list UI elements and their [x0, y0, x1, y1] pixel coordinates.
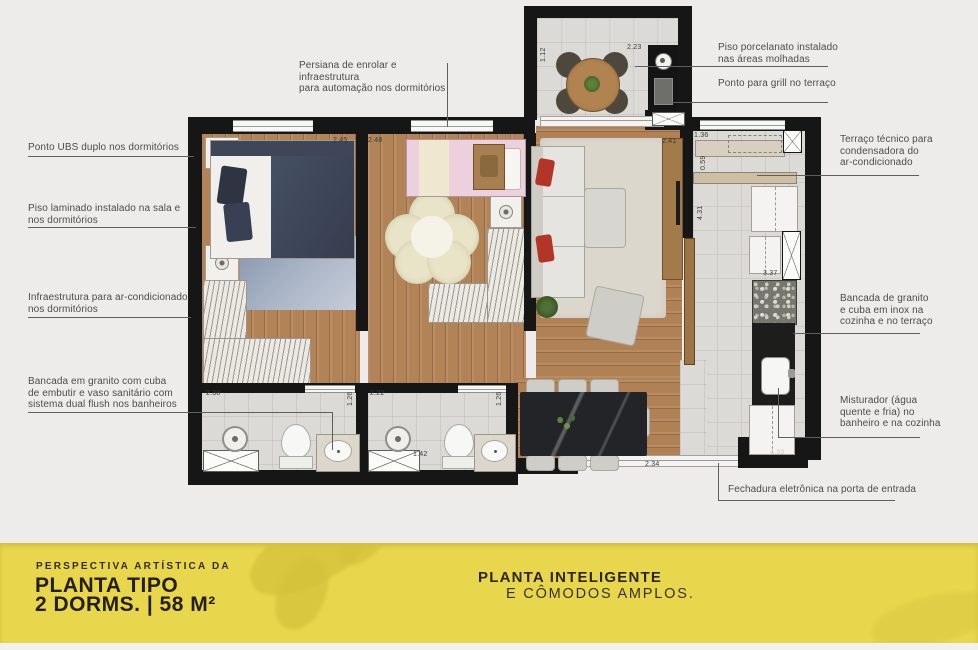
floor-plan: Persiana de enrolar e infraestrutura par… [0, 0, 978, 543]
leader-line [28, 156, 194, 157]
callout-ponto-ubs: Ponto UBS duplo nos dormitórios [28, 142, 198, 154]
kitchen-black-counter [752, 323, 795, 405]
callout-piso-laminado: Piso laminado instalado na sala e nos do… [28, 203, 198, 226]
bedroom1-window [233, 120, 313, 132]
dimension-label: 1.26 [496, 392, 503, 406]
leader-line [332, 412, 333, 450]
footer-eyebrow: PERSPECTIVA ARTÍSTICA DA [36, 561, 231, 572]
leader-line [28, 227, 196, 228]
dimension-label: 4.39 [770, 449, 784, 456]
kitchen-faucet [788, 369, 795, 378]
kitchen-stove-granite [752, 280, 797, 325]
sofa-red-pillow [535, 234, 555, 263]
dimension-label: 1.36 [694, 132, 708, 139]
leaf-shadow [867, 584, 978, 643]
dimension-label: 2.38 [206, 390, 220, 397]
terrace-table-plant [584, 76, 600, 92]
bathroom2-toilet [444, 424, 474, 459]
bedroom2-single-bed [406, 139, 526, 197]
dining-table [520, 392, 647, 456]
wall-terrace-left [524, 6, 537, 120]
bathroom1-sink [324, 440, 352, 462]
bedroom2-desk-chair [473, 144, 505, 190]
leader-line [778, 437, 920, 438]
kitchen-counter [749, 236, 781, 274]
bedroom1-wardrobe-horizontal [203, 338, 311, 384]
dining-chair [558, 455, 587, 471]
callout-bancada-cozinha: Bancada de granito e cuba em inox na coz… [840, 293, 950, 328]
condenser-dashed-outline [728, 135, 782, 153]
terrace-pass-through [652, 112, 685, 126]
shaft-top [783, 130, 802, 153]
wall-right [805, 128, 821, 460]
ottoman [584, 188, 626, 248]
hall-floor [680, 360, 707, 460]
leader-line [28, 412, 333, 413]
kitchen-cabinet [749, 405, 795, 455]
callout-infra-ar: Infraestrutura para ar-condicionado nos … [28, 292, 203, 315]
techterrace-kitchen-counter [693, 172, 797, 184]
footer-tagline-line2: E CÔMODOS AMPLOS. [506, 586, 695, 602]
tv-panel [662, 138, 683, 280]
armchair [585, 285, 645, 346]
dining-table-plant [550, 412, 584, 432]
floorplan-marketing-page: { "plan": { "callouts": { "top": "Persia… [0, 0, 978, 650]
dining-chair [526, 455, 555, 471]
callout-ponto-grill: Ponto para grill no terraço [718, 78, 858, 90]
dimension-label: 4.31 [697, 206, 704, 220]
dining-chair [590, 455, 619, 471]
leader-line [718, 500, 895, 501]
leader-line [635, 66, 828, 67]
kitchen-fridge [751, 186, 798, 232]
kitchen-sliding-door [684, 238, 695, 365]
terrace-grill-counter [648, 45, 678, 110]
bathroom1-toilet-tank [279, 456, 313, 469]
footer-tagline-line1: PLANTA INTELIGENTE [478, 569, 662, 586]
leader-line [793, 333, 920, 334]
leader-line [447, 63, 448, 127]
techterrace-window [700, 120, 785, 130]
bed-pillow [223, 202, 253, 243]
shaft-kitchen [782, 231, 801, 280]
bathroom1-toilet [281, 424, 311, 459]
callout-piso-porcelanato: Piso porcelanato instalado nas áreas mol… [718, 42, 858, 65]
bathroom1-shower-box [203, 450, 259, 472]
bathroom1-shower-head-icon [222, 426, 248, 452]
bedroom2-nightstand [490, 196, 522, 228]
dimension-label: 2.34 [645, 461, 659, 468]
callout-bancada-granito-banheiro: Bancada em granito com cuba de embutir e… [28, 376, 203, 411]
dimension-label: 1.26 [347, 392, 354, 406]
leader-line [757, 175, 919, 176]
wall-terrace-top [524, 6, 692, 18]
dimension-label: 1.12 [540, 48, 547, 62]
living-plant [536, 296, 558, 318]
dimension-label: 3.37 [763, 270, 777, 277]
dimension-label: 2.22 [370, 390, 384, 397]
dimension-label: 2.45 [333, 137, 347, 144]
bedroom2-flower-rug [385, 192, 481, 284]
terrace-sliding-door [540, 116, 664, 127]
sofa [531, 146, 585, 298]
callout-persiana: Persiana de enrolar e infraestrutura par… [299, 60, 449, 95]
bedroom2-window [411, 120, 493, 132]
terrace-sink [654, 78, 673, 105]
bed-pillow [216, 165, 247, 206]
callout-misturador: Misturador (água quente e fria) no banhe… [840, 395, 950, 430]
sofa-red-pillow [535, 158, 555, 187]
footer-title-line2: 2 DORMS. | 58 M² [35, 593, 216, 617]
kitchen-sink [761, 357, 790, 395]
bedroom1-double-bed [210, 140, 355, 259]
leader-line [28, 317, 191, 318]
bathroom2-toilet-tank [442, 456, 476, 469]
tv [676, 181, 680, 225]
leader-line [718, 463, 719, 501]
callout-fechadura: Fechadura eletrônica na porta de entrada [728, 484, 948, 496]
bottom-margin [0, 643, 978, 650]
callout-terraco-tecnico: Terraço técnico para condensadora do ar-… [840, 134, 950, 169]
bathroom2-sink [481, 440, 508, 462]
dimension-label: 1.42 [413, 451, 427, 458]
leader-line [672, 102, 828, 103]
bedroom2-wardrobe-vertical [487, 228, 526, 323]
dimension-label: 2.23 [627, 44, 641, 51]
bathroom2-shower-head-icon [385, 426, 411, 452]
dimension-label: 0.59 [700, 156, 707, 170]
dimension-label: 2.48 [368, 137, 382, 144]
wall-bedroom-divider [356, 133, 368, 331]
leader-line [778, 388, 779, 437]
wall-bottom-left [188, 470, 518, 485]
dimension-label: 2.41 [662, 138, 676, 145]
